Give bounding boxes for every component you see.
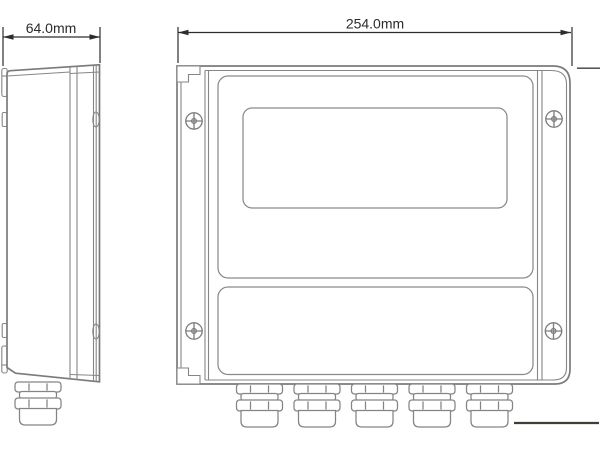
drawing-canvas: 64.0mm: [0, 0, 600, 455]
technical-drawing-svg: 64.0mm: [0, 0, 600, 455]
front-view: 254.0mm: [177, 16, 572, 428]
side-enclosure-body: [7, 65, 100, 382]
screw-icon-bottom-left: [186, 323, 202, 339]
screw-icon-top-left: [186, 113, 202, 129]
arrowhead-right: [90, 34, 101, 39]
display-window: [243, 108, 507, 208]
side-view: 64.0mm: [2, 20, 100, 425]
cable-gland-4: [409, 384, 455, 427]
screw-icon-top-right: [546, 111, 562, 127]
cable-gland-5: [467, 384, 513, 427]
side-dimension: 64.0mm: [3, 20, 100, 66]
terminal-cover-panel: [218, 287, 533, 375]
cable-gland-3: [352, 384, 398, 427]
front-cable-glands: [237, 384, 513, 427]
side-outline: [7, 65, 100, 382]
arrowhead-left: [178, 30, 189, 35]
side-dimension-label: 64.0mm: [26, 20, 77, 36]
cable-gland-side: [15, 382, 61, 425]
cable-gland-2: [294, 384, 340, 427]
arrowhead-left: [3, 34, 14, 39]
screw-icon-bottom-right: [545, 323, 561, 339]
front-dimension: 254.0mm: [178, 16, 572, 67]
cable-gland-1: [237, 384, 283, 427]
front-dimension-label: 254.0mm: [346, 16, 404, 32]
arrowhead-right: [561, 30, 572, 35]
